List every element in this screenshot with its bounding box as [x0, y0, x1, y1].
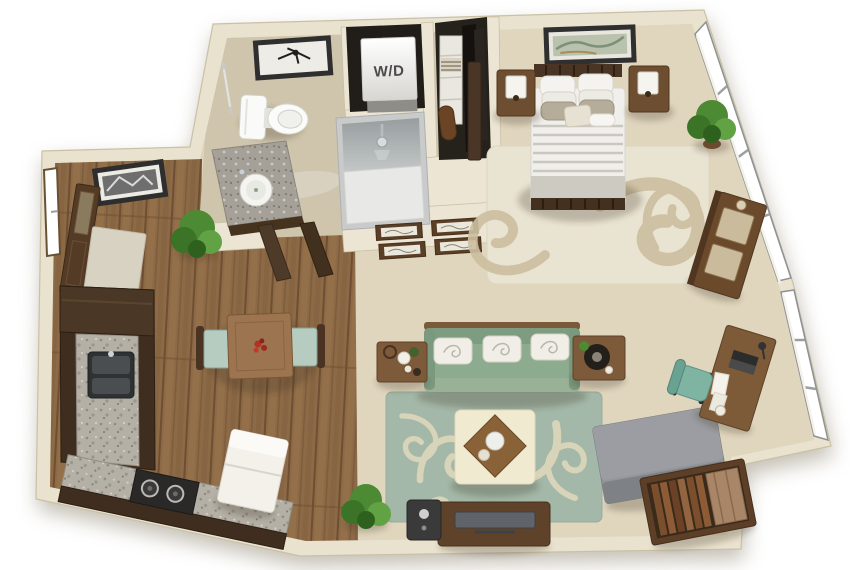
kitchen-sink: [88, 351, 134, 398]
nightstand-left: [493, 70, 541, 125]
faucet: [108, 351, 114, 357]
dining-chair-right: [290, 324, 325, 368]
blanket: [531, 176, 625, 200]
floor-plan-render: W/D: [0, 0, 850, 570]
end-table-right: [571, 336, 625, 389]
upper-cabinet: [60, 286, 154, 336]
towels: [441, 58, 461, 72]
throw-pillows: [434, 334, 569, 364]
bathroom-framed-art: [253, 35, 334, 80]
laundry-closet: W/D: [346, 24, 425, 113]
bedroom-framed-art: [543, 24, 636, 65]
television: [455, 512, 535, 528]
table-lamp: [638, 72, 658, 94]
closet-door: [468, 62, 481, 160]
shower-head: [377, 137, 387, 147]
ottoman-coffee-table: [451, 410, 539, 497]
end-table-left: [376, 342, 428, 391]
sofa: [417, 322, 587, 409]
entry-window: [44, 168, 60, 256]
washer-dryer-label: W/D: [373, 63, 404, 81]
table-lamp: [506, 76, 526, 98]
hall-closet: [435, 17, 491, 160]
footboard: [531, 198, 625, 210]
faucet: [239, 169, 245, 175]
nightstand-right: [626, 66, 674, 121]
gallery-frame: [376, 223, 423, 241]
floor-plan-stage: W/D: [0, 0, 850, 570]
speaker: [407, 500, 441, 540]
counter-left-run: [60, 286, 155, 470]
tv-console: [438, 502, 550, 555]
washer-dryer-unit: W/D: [361, 37, 418, 113]
dining-chair-left: [196, 326, 231, 370]
gallery-frame: [379, 241, 426, 259]
dining-table: [227, 313, 293, 379]
shower: [336, 112, 430, 230]
